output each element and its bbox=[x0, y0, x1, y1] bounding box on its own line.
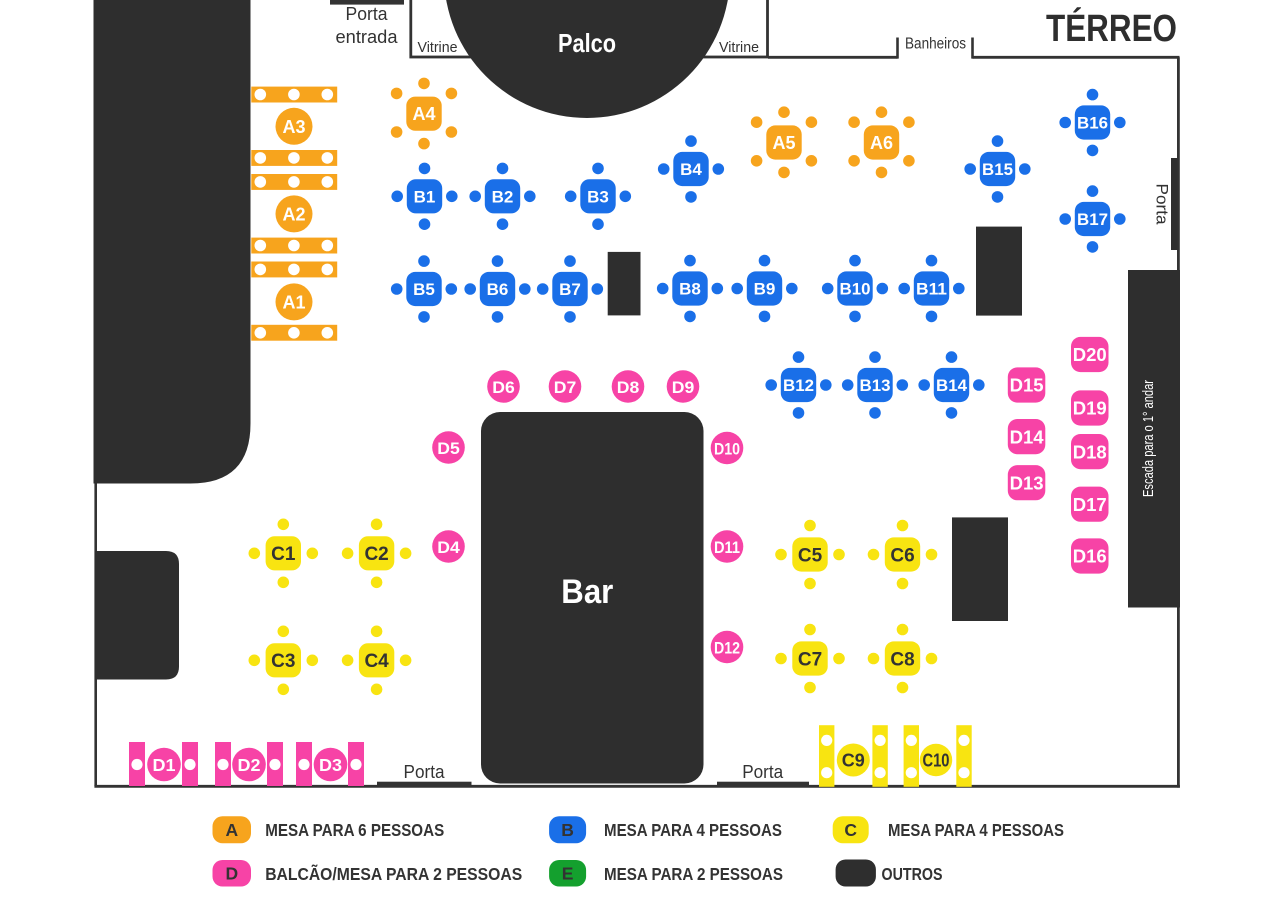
svg-text:D6: D6 bbox=[492, 378, 515, 397]
svg-text:B10: B10 bbox=[840, 280, 871, 299]
svg-text:D1: D1 bbox=[153, 755, 176, 775]
svg-text:D15: D15 bbox=[1010, 375, 1044, 396]
svg-text:B9: B9 bbox=[754, 280, 776, 299]
svg-text:C1: C1 bbox=[271, 544, 296, 565]
svg-text:MESA PARA 4 PESSOAS: MESA PARA 4 PESSOAS bbox=[888, 820, 1064, 840]
svg-text:C2: C2 bbox=[364, 544, 388, 565]
svg-text:B7: B7 bbox=[559, 280, 581, 299]
svg-text:B14: B14 bbox=[936, 376, 968, 395]
svg-text:MESA PARA 2 PESSOAS: MESA PARA 2 PESSOAS bbox=[604, 864, 783, 884]
svg-text:Porta: Porta bbox=[1153, 184, 1171, 226]
svg-text:D5: D5 bbox=[437, 439, 460, 458]
svg-text:C7: C7 bbox=[798, 649, 822, 670]
svg-text:Banheiros: Banheiros bbox=[905, 36, 966, 53]
svg-text:D18: D18 bbox=[1073, 441, 1107, 462]
svg-text:A1: A1 bbox=[282, 293, 305, 313]
svg-text:Porta: Porta bbox=[742, 762, 784, 782]
svg-text:B11: B11 bbox=[916, 280, 947, 299]
svg-text:D20: D20 bbox=[1073, 344, 1107, 365]
svg-text:D17: D17 bbox=[1073, 494, 1107, 515]
svg-text:Palco: Palco bbox=[558, 28, 616, 58]
svg-text:MESA PARA 4 PESSOAS: MESA PARA 4 PESSOAS bbox=[604, 820, 782, 840]
svg-text:Porta: Porta bbox=[346, 3, 389, 24]
svg-text:B16: B16 bbox=[1077, 114, 1108, 133]
svg-text:B12: B12 bbox=[783, 376, 814, 395]
svg-text:Escada para o 1° andar: Escada para o 1° andar bbox=[1140, 380, 1157, 497]
svg-text:A6: A6 bbox=[870, 133, 893, 153]
svg-text:D12: D12 bbox=[714, 639, 740, 658]
svg-text:C: C bbox=[844, 820, 857, 840]
svg-text:C3: C3 bbox=[271, 651, 295, 672]
svg-text:C4: C4 bbox=[364, 651, 389, 672]
svg-text:B6: B6 bbox=[487, 280, 509, 299]
svg-text:D: D bbox=[225, 864, 238, 884]
svg-text:B: B bbox=[561, 820, 574, 840]
svg-text:D3: D3 bbox=[319, 755, 342, 775]
svg-text:C5: C5 bbox=[798, 545, 823, 566]
svg-text:A2: A2 bbox=[282, 205, 305, 225]
svg-text:B13: B13 bbox=[860, 376, 891, 395]
svg-text:B2: B2 bbox=[492, 187, 514, 206]
svg-text:E: E bbox=[562, 864, 574, 884]
svg-text:D16: D16 bbox=[1073, 546, 1107, 567]
svg-text:B3: B3 bbox=[587, 187, 609, 206]
svg-text:C8: C8 bbox=[890, 649, 914, 670]
svg-text:B4: B4 bbox=[680, 160, 702, 179]
svg-text:Vitrine: Vitrine bbox=[719, 39, 759, 56]
svg-text:B5: B5 bbox=[413, 280, 435, 299]
svg-text:D8: D8 bbox=[617, 378, 640, 397]
svg-text:OUTROS: OUTROS bbox=[882, 864, 943, 884]
svg-text:entrada: entrada bbox=[336, 26, 399, 47]
svg-text:BALCÃO/MESA PARA 2 PESSOAS: BALCÃO/MESA PARA 2 PESSOAS bbox=[265, 863, 522, 884]
svg-text:A: A bbox=[225, 820, 238, 840]
svg-text:C10: C10 bbox=[923, 750, 950, 770]
svg-text:C6: C6 bbox=[890, 545, 914, 566]
svg-text:D13: D13 bbox=[1010, 472, 1044, 493]
svg-text:D4: D4 bbox=[437, 538, 460, 557]
svg-text:MESA PARA 6 PESSOAS: MESA PARA 6 PESSOAS bbox=[265, 820, 444, 840]
svg-text:D19: D19 bbox=[1073, 398, 1107, 419]
svg-text:A4: A4 bbox=[412, 104, 435, 124]
svg-text:Porta: Porta bbox=[404, 762, 446, 782]
svg-text:Vitrine: Vitrine bbox=[418, 39, 458, 56]
svg-text:D11: D11 bbox=[714, 538, 740, 557]
svg-text:A3: A3 bbox=[282, 117, 305, 137]
svg-text:TÉRREO: TÉRREO bbox=[1046, 6, 1177, 50]
svg-text:D7: D7 bbox=[554, 378, 577, 397]
svg-text:D10: D10 bbox=[714, 440, 740, 459]
svg-text:Bar: Bar bbox=[561, 573, 613, 611]
svg-text:A5: A5 bbox=[772, 133, 795, 153]
svg-text:C9: C9 bbox=[842, 750, 865, 770]
svg-text:B1: B1 bbox=[414, 187, 436, 206]
svg-text:B8: B8 bbox=[679, 280, 701, 299]
svg-text:D14: D14 bbox=[1010, 426, 1045, 447]
svg-text:D9: D9 bbox=[672, 378, 695, 397]
svg-text:D2: D2 bbox=[238, 755, 261, 775]
svg-text:B15: B15 bbox=[982, 160, 1013, 179]
svg-text:B17: B17 bbox=[1077, 210, 1108, 229]
